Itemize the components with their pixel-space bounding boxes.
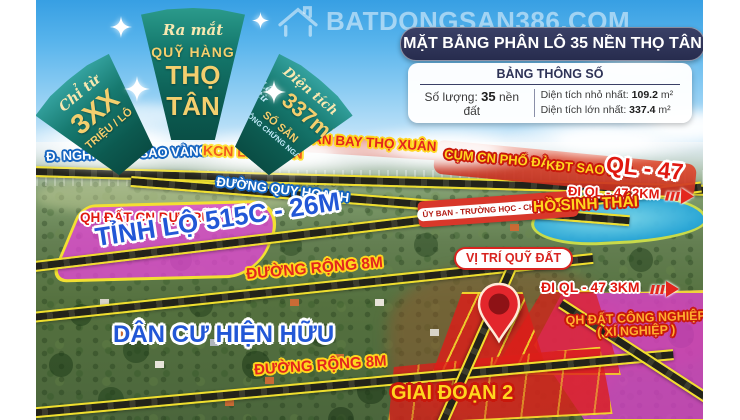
project-line1: QUỸ HÀNG: [141, 44, 245, 60]
right-margin: [703, 0, 740, 420]
min-area-unit: m²: [661, 89, 673, 101]
max-area-line: Diện tích lớn nhất: 337.4 m²: [541, 103, 684, 118]
label-qh-cong-nghiep: QH ĐẤT CÔNG NGHIỆP ( XÍ NGHIỆP ): [541, 309, 703, 342]
spec-panel-title: BẢNG THÔNG SỐ: [420, 67, 680, 85]
left-margin: [0, 0, 36, 420]
spec-panel-row: Số lượng: 35 nền đất Diện tích nhỏ nhất:…: [416, 88, 684, 118]
min-area-value: 109.2: [632, 89, 658, 101]
lot-quantity-value: 35: [481, 89, 495, 104]
lot-quantity-label: Số lượng:: [425, 90, 478, 104]
plan-title-banner: MẶT BẰNG PHÂN LÔ 35 NỀN THỌ TÂN: [400, 27, 703, 61]
poster-canvas: ỦY BAN - TRƯỜNG HỌC - CHỢ 1KM Đ. NGHI SƠ…: [0, 0, 740, 420]
amenities-pill: ỦY BAN - TRƯỜNG HỌC - CHỢ: [417, 199, 547, 221]
sparkle-icon: [262, 80, 286, 104]
spec-panel: BẢNG THÔNG SỐ Số lượng: 35 nền đất Diện …: [408, 63, 692, 123]
sparkle-icon: [110, 16, 132, 38]
launch-script: Ra mắt: [141, 21, 245, 39]
panel-divider: [534, 89, 535, 117]
map-content: ỦY BAN - TRƯỜNG HỌC - CHỢ 1KM Đ. NGHI SƠ…: [36, 0, 703, 420]
max-area-label: Diện tích lớn nhất:: [541, 104, 627, 116]
min-area-label: Diện tích nhỏ nhất:: [541, 89, 629, 101]
plan-title: MẶT BẰNG PHÂN LÔ 35 NỀN THỌ TÂN: [403, 35, 702, 53]
arrow-right-2km: [666, 188, 695, 205]
location-pin-icon: [476, 281, 522, 350]
lot-quantity: Số lượng: 35 nền đất: [416, 89, 528, 118]
label-giai-doan-2: GIAI ĐOẠN 2: [391, 383, 513, 404]
label-vi-tri-quy-dat: VỊ TRÍ QUỸ ĐẤT: [454, 247, 573, 270]
min-area-line: Diện tích nhỏ nhất: 109.2 m²: [541, 88, 684, 103]
max-area-value: 337.4: [629, 104, 655, 116]
fan-segment-project: Ra mắt QUỸ HÀNG THỌ TÂN: [141, 8, 245, 140]
sparkle-icon: [252, 12, 269, 29]
project-line2: THỌ TÂN: [141, 60, 245, 122]
area-specs: Diện tích nhỏ nhất: 109.2 m² Diện tích l…: [541, 88, 684, 118]
sparkle-icon: [124, 76, 150, 102]
label-di-ql47-3km: ĐI QL - 47 3KM: [541, 280, 640, 295]
arrow-right-3km: [651, 281, 679, 297]
house-icon: [276, 4, 320, 38]
max-area-unit: m²: [658, 104, 670, 116]
label-dan-cu-hien-huu: DÂN CƯ HIỆN HỮU: [113, 322, 334, 347]
